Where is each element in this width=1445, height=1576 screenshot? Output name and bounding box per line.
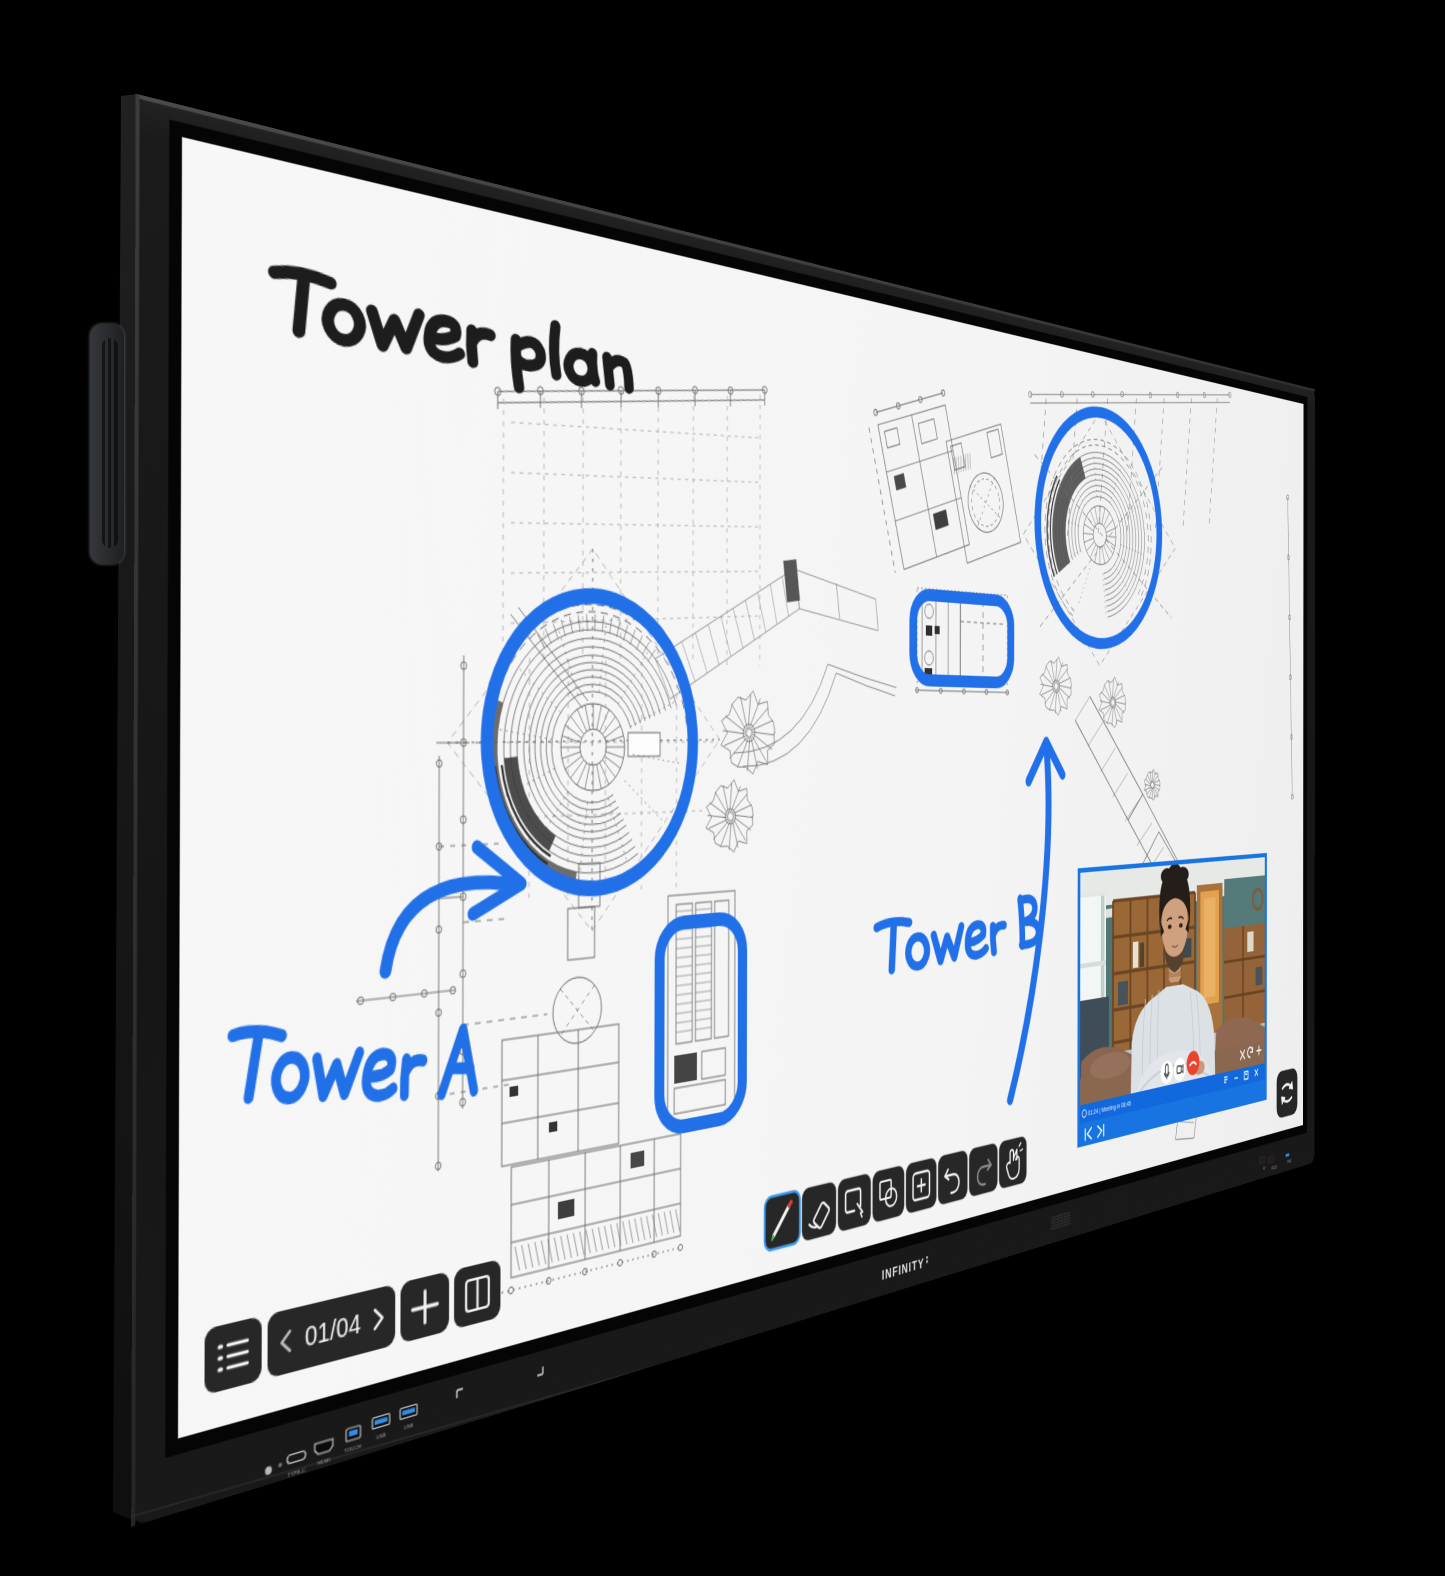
svg-text:HDMI: HDMI (317, 1457, 330, 1468)
svg-text:RS232: RS232 (1272, 1165, 1278, 1171)
svg-text:USB: USB (404, 1422, 413, 1431)
svg-text:USB: USB (376, 1432, 386, 1441)
svg-text:TYPE-C: TYPE-C (287, 1467, 306, 1479)
svg-text:PWR: PWR (1287, 1159, 1291, 1164)
svg-text:INFINITY: INFINITY (882, 1255, 924, 1283)
svg-text:AV: AV (1263, 1166, 1266, 1171)
